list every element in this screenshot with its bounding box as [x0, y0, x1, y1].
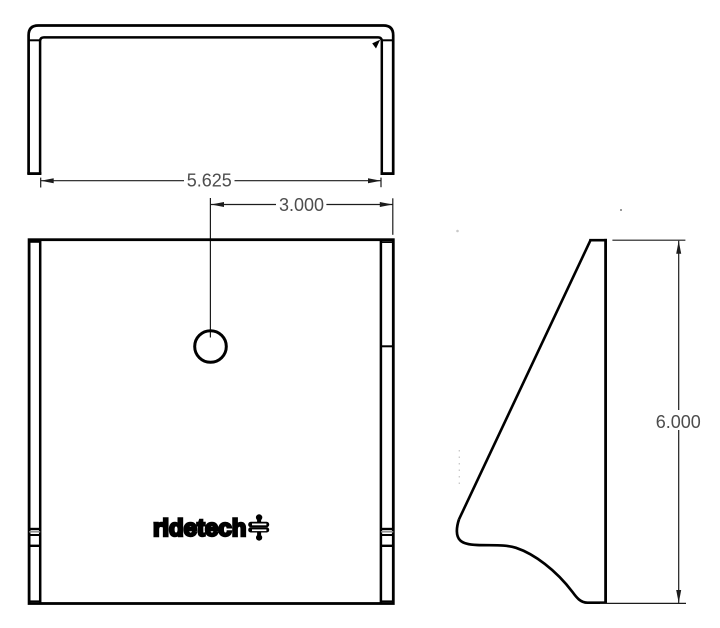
svg-text:5.625: 5.625	[187, 170, 232, 190]
svg-text:6.000: 6.000	[656, 412, 701, 432]
svg-text:ridetech: ridetech	[153, 515, 246, 542]
svg-text:3.000: 3.000	[279, 195, 324, 215]
